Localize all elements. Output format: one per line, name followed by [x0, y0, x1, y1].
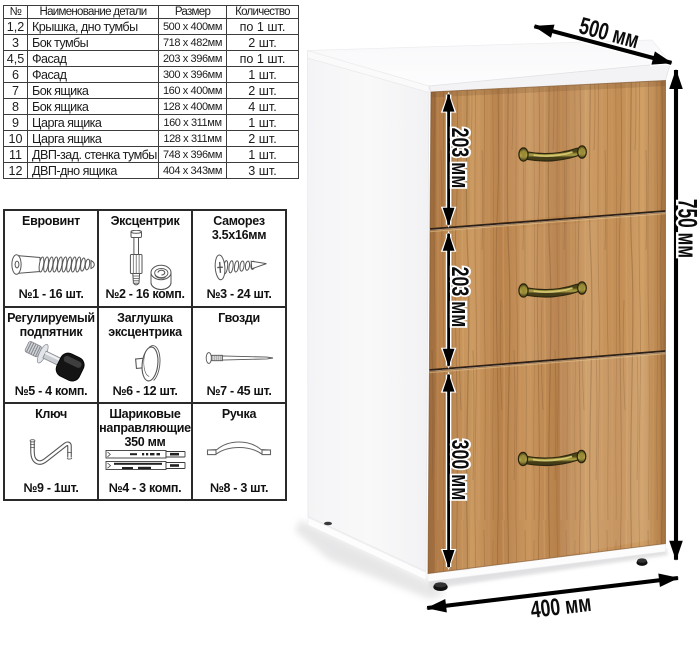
svg-text:203 мм: 203 мм: [446, 267, 472, 328]
svg-text:300 мм: 300 мм: [446, 440, 472, 501]
svg-text:203 мм: 203 мм: [446, 128, 472, 189]
svg-text:750 мм: 750 мм: [673, 199, 700, 258]
